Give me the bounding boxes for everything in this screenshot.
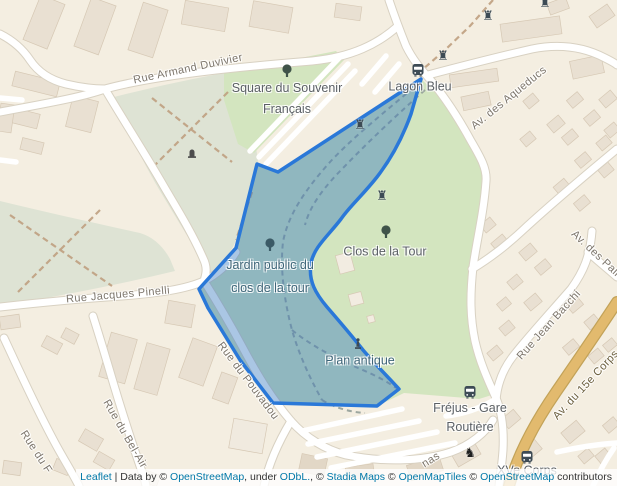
odbl-link[interactable]: ODbL. <box>280 471 310 483</box>
leaflet-map-canvas[interactable]: Square du Souvenir Français Lagon Bleu C… <box>0 0 617 486</box>
attribution-text: © <box>385 471 399 483</box>
attribution-text: , © <box>310 471 327 483</box>
attribution-text: , under <box>244 471 280 483</box>
openstreetmap-link[interactable]: OpenStreetMap <box>170 471 244 483</box>
leaflet-link[interactable]: Leaflet <box>80 471 112 483</box>
attribution-bar: Leaflet | Data by © OpenStreetMap, under… <box>76 469 617 486</box>
attribution-separator: | <box>112 471 121 483</box>
map-tile-layer <box>0 0 617 486</box>
attribution-text: © <box>467 471 481 483</box>
openstreetmap-link[interactable]: OpenStreetMap <box>480 471 554 483</box>
attribution-text: Data by © <box>120 471 170 483</box>
attribution-text: contributors <box>554 471 612 483</box>
openmaptiles-link[interactable]: OpenMapTiles <box>399 471 467 483</box>
stadia-maps-link[interactable]: Stadia Maps <box>327 471 385 483</box>
